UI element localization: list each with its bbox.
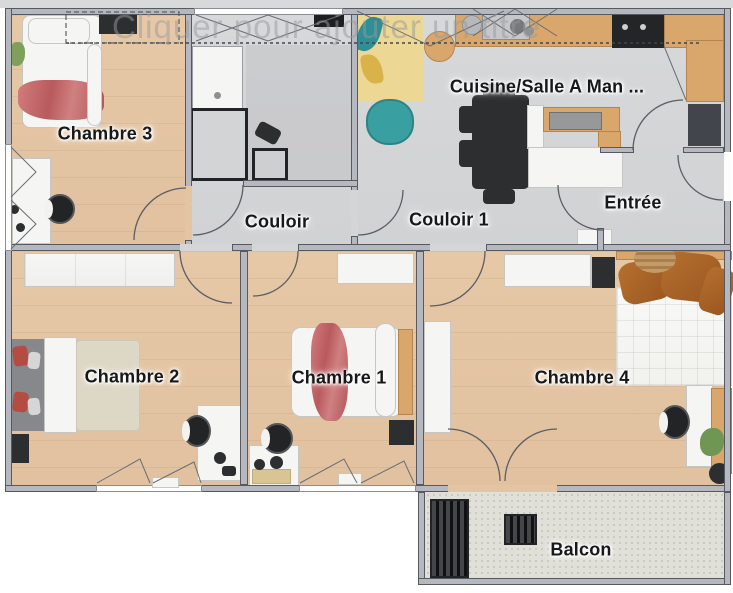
window-opening-marks: [11, 147, 36, 249]
front-door-arc[interactable]: [678, 155, 723, 200]
room-label-entree: Entrée: [604, 193, 661, 214]
door-arc-bathroom[interactable]: [193, 185, 243, 235]
room-label-chambre2: Chambre 2: [85, 367, 180, 388]
window-opening-marks: [300, 459, 414, 483]
room-label-chambre4: Chambre 4: [535, 368, 630, 389]
room-label-chambre3: Chambre 3: [58, 124, 153, 145]
door-arc-couloir[interactable]: [358, 190, 403, 235]
room-label-couloir: Couloir: [245, 212, 309, 233]
room-label-couloir1: Couloir 1: [409, 210, 489, 231]
door-arc-chambre4[interactable]: [430, 251, 485, 306]
door-arc-chambre3[interactable]: [134, 188, 186, 240]
title-placeholder[interactable]: Cliquer pour ajouter un titre: [112, 8, 541, 46]
balcony-door-arc-left[interactable]: [448, 429, 500, 481]
window-opening-marks: [97, 459, 201, 483]
counter-corner-line: [664, 46, 686, 100]
door-arc-entree[interactable]: [558, 185, 603, 230]
room-label-cuisine: Cuisine/Salle A Man ...: [450, 77, 644, 98]
floorplan-canvas: Chambre 3 Couloir Couloir 1 Cuisine/Sall…: [0, 0, 733, 593]
door-arc-chambre1[interactable]: [253, 251, 298, 296]
room-label-balcon: Balcon: [550, 540, 611, 561]
room-label-chambre1: Chambre 1: [292, 368, 387, 389]
door-arc-cuisine[interactable]: [633, 100, 683, 150]
door-arc-chambre2[interactable]: [180, 251, 232, 303]
balcony-door-arc-right[interactable]: [505, 429, 557, 481]
